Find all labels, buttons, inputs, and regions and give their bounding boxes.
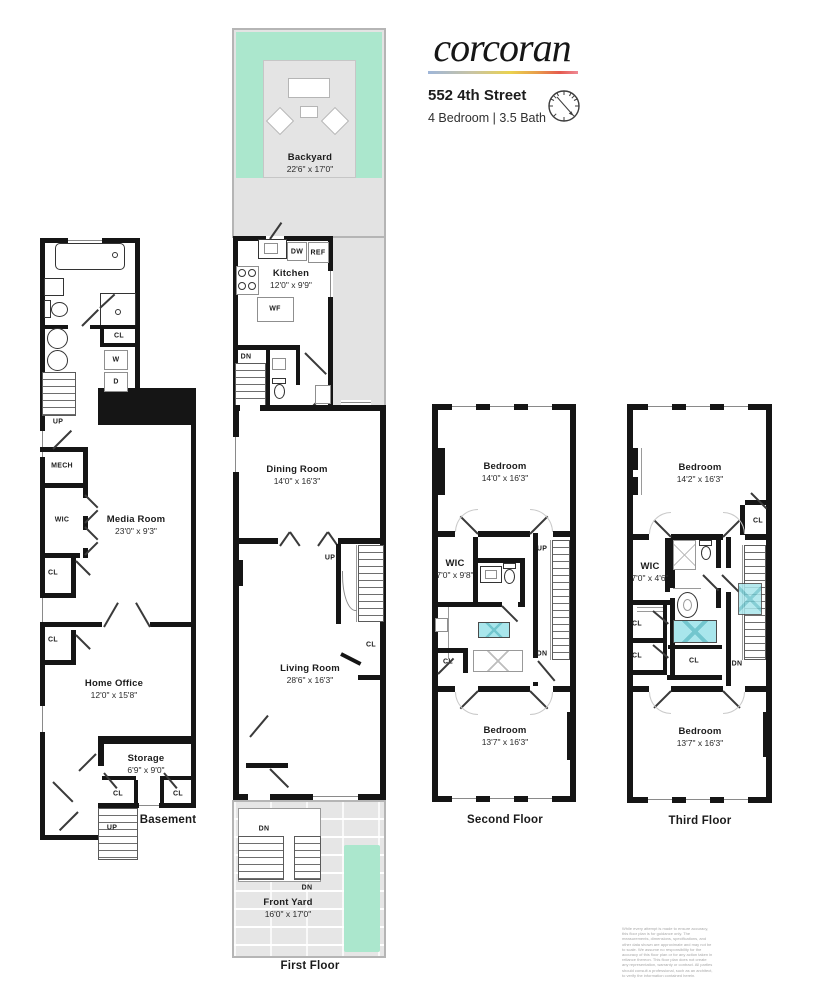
wall bbox=[338, 538, 386, 544]
closet-label: CL bbox=[114, 333, 124, 340]
room-dims: 12'0" x 15'8" bbox=[85, 690, 143, 700]
door-leaf bbox=[269, 768, 289, 788]
chimney-chunk bbox=[627, 477, 638, 495]
dn-label: DN bbox=[537, 651, 548, 658]
wall bbox=[40, 835, 100, 840]
up-label: UP bbox=[53, 419, 63, 426]
window bbox=[139, 803, 159, 808]
up-label: UP bbox=[325, 555, 335, 562]
door-arc bbox=[530, 509, 553, 532]
closet-label: CL bbox=[366, 642, 376, 649]
toilet-bowl bbox=[51, 302, 68, 317]
room-label-front-yard: Front Yard 16'0" x 17'0" bbox=[263, 897, 312, 919]
room-label-wic: WIC 7'0" x 4'6" bbox=[631, 561, 668, 583]
window bbox=[648, 797, 672, 803]
wall bbox=[627, 534, 649, 540]
wall bbox=[432, 531, 455, 537]
door-leaf bbox=[304, 352, 327, 375]
closet-label: CL bbox=[48, 637, 58, 644]
room-dims: 14'0" x 16'3" bbox=[482, 473, 529, 483]
wall bbox=[40, 593, 76, 598]
room-dims: 23'0" x 9'3" bbox=[107, 526, 165, 536]
wall-chunk bbox=[567, 712, 576, 760]
refrigerator-label: REF bbox=[311, 250, 326, 257]
toilet-tank bbox=[44, 300, 51, 318]
wall bbox=[627, 670, 665, 675]
wall bbox=[432, 602, 502, 607]
room-label-media: Media Room 23'0" x 9'3" bbox=[107, 514, 165, 536]
door-arc bbox=[530, 692, 553, 715]
burner bbox=[248, 282, 256, 290]
closet-label: CL bbox=[632, 653, 642, 660]
room-dims: 16'0" x 17'0" bbox=[263, 909, 312, 919]
stoop-stairs bbox=[238, 836, 284, 880]
wall bbox=[553, 686, 576, 692]
room-label-dining: Dining Room 14'0" x 16'3" bbox=[266, 464, 327, 486]
first-floor-plan: Backyard 22'6" x 17'0" DW REF Kitchen 12… bbox=[230, 26, 390, 974]
door-arc bbox=[649, 692, 671, 714]
window bbox=[724, 404, 748, 410]
room-name: Dining Room bbox=[266, 464, 327, 475]
room-name: Home Office bbox=[85, 678, 143, 689]
room-name: Media Room bbox=[107, 514, 165, 525]
wall bbox=[83, 447, 88, 488]
room-dims: 13'7" x 16'3" bbox=[677, 738, 724, 748]
up-label: UP bbox=[537, 546, 547, 553]
dn-label: DN bbox=[302, 885, 313, 892]
wall bbox=[71, 553, 76, 598]
door-opening bbox=[240, 405, 260, 411]
room-dims: 6'9" x 9'0" bbox=[127, 765, 164, 775]
room-name: Storage bbox=[127, 753, 164, 764]
wine-fridge-label: WF bbox=[269, 306, 280, 313]
room-label-bedroom-rear: Bedroom 13'7" x 16'3" bbox=[677, 726, 724, 748]
shelf-line bbox=[637, 611, 663, 612]
room-dims: 7'0" x 4'6" bbox=[631, 573, 668, 583]
kitchen-sink-basin bbox=[264, 243, 278, 254]
room-name: Kitchen bbox=[270, 268, 312, 279]
closet-label: CL bbox=[173, 791, 183, 798]
third-floor-plan: Bedroom 14'2" x 16'3" CL WIC 7'0" x 4'6" bbox=[625, 402, 777, 832]
wall bbox=[266, 350, 270, 405]
room-name: Bedroom bbox=[482, 725, 529, 736]
closet-door bbox=[163, 772, 177, 789]
door-leaf bbox=[52, 781, 73, 802]
skylight bbox=[738, 583, 762, 615]
floor-label-basement: Basement bbox=[140, 814, 197, 826]
window bbox=[528, 796, 552, 802]
wall bbox=[667, 675, 722, 680]
chimney-chunk bbox=[432, 448, 445, 495]
tub-faucet bbox=[112, 252, 118, 258]
door-leaf bbox=[501, 605, 518, 622]
room-name: Bedroom bbox=[677, 462, 724, 473]
window bbox=[490, 404, 514, 410]
window bbox=[648, 404, 672, 410]
vanity-edge bbox=[673, 588, 701, 589]
wall bbox=[98, 736, 104, 766]
room-label-backyard: Backyard 22'6" x 17'0" bbox=[287, 152, 334, 174]
dishwasher-label: DW bbox=[291, 249, 303, 256]
wall bbox=[627, 638, 665, 643]
patio-table bbox=[288, 78, 330, 98]
window bbox=[452, 796, 476, 802]
wall bbox=[40, 622, 102, 627]
stairs-down bbox=[235, 363, 266, 407]
second-floor-plan: Bedroom 14'0" x 16'3" WIC 7'0" x 9'8" bbox=[430, 402, 580, 832]
closet-label: CL bbox=[753, 518, 763, 525]
up-label: UP bbox=[107, 825, 117, 832]
door-arc bbox=[649, 512, 671, 534]
sink-basin bbox=[683, 599, 692, 611]
room-name: WIC bbox=[631, 561, 668, 572]
dn-label: DN bbox=[732, 661, 743, 668]
door-arc bbox=[723, 692, 745, 714]
wall bbox=[150, 622, 196, 627]
pocket-door bbox=[289, 531, 300, 546]
sink bbox=[435, 618, 448, 632]
sink bbox=[44, 278, 64, 296]
room-name: WIC bbox=[436, 558, 473, 569]
closet-label: CL bbox=[48, 570, 58, 577]
burner bbox=[238, 282, 246, 290]
wall bbox=[40, 447, 88, 452]
closet-label: CL bbox=[632, 621, 642, 628]
toilet-bowl bbox=[701, 546, 711, 560]
wall bbox=[100, 325, 140, 329]
window bbox=[233, 437, 239, 472]
wall bbox=[475, 558, 525, 563]
wall bbox=[520, 558, 525, 607]
bed-bath-specs: 4 Bedroom | 3.5 Bath bbox=[428, 111, 546, 125]
wall bbox=[533, 682, 538, 686]
room-name: Front Yard bbox=[263, 897, 312, 908]
wall bbox=[134, 780, 138, 806]
room-label-bedroom-front: Bedroom 14'0" x 16'3" bbox=[482, 461, 529, 483]
room-label-bedroom-front: Bedroom 14'2" x 16'3" bbox=[677, 462, 724, 484]
dn-label: DN bbox=[259, 826, 270, 833]
room-dims: 7'0" x 9'8" bbox=[436, 570, 473, 580]
bay-line bbox=[641, 448, 642, 495]
pocket-door bbox=[317, 532, 328, 547]
room-dims: 14'2" x 16'3" bbox=[677, 474, 724, 484]
wall bbox=[463, 648, 468, 673]
powder-sink bbox=[272, 358, 286, 370]
closet-label: CL bbox=[689, 658, 699, 665]
wall bbox=[478, 686, 530, 692]
front-yard-planting bbox=[344, 845, 380, 952]
door-leaf bbox=[721, 574, 739, 592]
wall bbox=[358, 675, 386, 680]
disclaimer-text: While every attempt is made to ensure ac… bbox=[622, 926, 714, 978]
room-label-office: Home Office 12'0" x 15'8" bbox=[85, 678, 143, 700]
wall bbox=[233, 538, 278, 544]
door-leaf bbox=[702, 574, 719, 591]
stairs-up bbox=[358, 545, 384, 622]
bathtub-teal bbox=[478, 622, 510, 638]
double-door-leaf bbox=[135, 602, 151, 627]
wall bbox=[296, 345, 300, 385]
stair-rail bbox=[550, 540, 551, 660]
room-label-wic: WIC 7'0" x 9'8" bbox=[436, 558, 473, 580]
wall bbox=[671, 686, 723, 692]
sink-basin bbox=[485, 570, 497, 579]
room-label-bedroom-rear: Bedroom 13'7" x 16'3" bbox=[482, 725, 529, 747]
laundry-sink bbox=[47, 328, 68, 349]
mech-label: MECH bbox=[51, 463, 73, 470]
wall bbox=[98, 736, 196, 744]
dn-label: DN bbox=[241, 354, 252, 361]
closet-door bbox=[103, 772, 117, 789]
wall bbox=[432, 686, 455, 692]
wall bbox=[40, 660, 76, 665]
door-leaf bbox=[249, 715, 269, 738]
wall bbox=[518, 602, 525, 607]
floor-label-second: Second Floor bbox=[467, 814, 543, 826]
stairs-up bbox=[42, 372, 76, 416]
room-name: Bedroom bbox=[482, 461, 529, 472]
window bbox=[40, 431, 45, 457]
room-dims: 14'0" x 16'3" bbox=[266, 476, 327, 486]
washer-label: W bbox=[113, 357, 120, 364]
floorplan-sheet: corcoran 552 4th Street 4 Bedroom | 3.5 … bbox=[0, 0, 813, 1000]
wall bbox=[90, 325, 100, 329]
double-door-leaf bbox=[103, 602, 119, 627]
shower bbox=[673, 540, 696, 570]
window bbox=[40, 706, 45, 732]
wall bbox=[668, 645, 722, 649]
shower bbox=[473, 650, 523, 672]
logo-gradient-bar bbox=[428, 71, 578, 74]
window bbox=[328, 271, 333, 297]
angled-wall bbox=[340, 652, 361, 666]
laundry-sink bbox=[47, 350, 68, 371]
entry-closet bbox=[315, 385, 331, 404]
stair-curve bbox=[342, 571, 357, 611]
window bbox=[724, 797, 748, 803]
wall-chunk bbox=[763, 712, 772, 757]
address: 552 4th Street bbox=[428, 87, 526, 104]
wall bbox=[100, 343, 140, 347]
wall bbox=[98, 388, 196, 425]
wall bbox=[726, 592, 731, 686]
window bbox=[490, 796, 514, 802]
exterior-stairs bbox=[98, 808, 138, 860]
yard-stairs bbox=[294, 836, 321, 880]
room-label-kitchen: Kitchen 12'0" x 9'9" bbox=[270, 268, 312, 290]
closet-label: CL bbox=[113, 791, 123, 798]
basement-floor-plan: CL W D UP MECH WIC CL Media Room 23'0" x… bbox=[38, 236, 198, 876]
door-arc bbox=[455, 509, 478, 532]
stairs bbox=[552, 540, 570, 660]
window bbox=[686, 797, 710, 803]
door-arc bbox=[455, 692, 478, 715]
wall bbox=[40, 483, 88, 488]
room-name: Backyard bbox=[287, 152, 334, 163]
wall bbox=[553, 531, 576, 537]
wall bbox=[473, 537, 478, 607]
wall bbox=[745, 686, 772, 692]
room-label-living: Living Room 28'6" x 16'3" bbox=[280, 663, 340, 685]
closet-door bbox=[75, 634, 91, 650]
window bbox=[452, 404, 476, 410]
wall bbox=[160, 780, 164, 806]
closet-door bbox=[84, 526, 98, 540]
room-name: Bedroom bbox=[677, 726, 724, 737]
room-name: Living Room bbox=[280, 663, 340, 674]
window bbox=[686, 404, 710, 410]
dryer-label: D bbox=[113, 379, 118, 386]
wall bbox=[191, 425, 196, 808]
side-yard bbox=[331, 238, 386, 405]
wall bbox=[246, 763, 288, 768]
floor-label-third: Third Floor bbox=[669, 815, 732, 827]
room-dims: 12'0" x 9'9" bbox=[270, 280, 312, 290]
door-leaf bbox=[59, 811, 79, 831]
wall bbox=[627, 686, 649, 692]
window bbox=[528, 404, 552, 410]
room-dims: 22'6" x 17'0" bbox=[287, 164, 334, 174]
room-label-storage: Storage 6'9" x 9'0" bbox=[127, 753, 164, 775]
bay-chunk bbox=[233, 560, 243, 586]
wall bbox=[726, 537, 731, 568]
closet-door bbox=[84, 494, 98, 508]
chimney-chunk bbox=[627, 448, 638, 470]
compass-icon bbox=[546, 88, 582, 124]
wall bbox=[716, 538, 721, 568]
shelf-line bbox=[637, 607, 663, 608]
wic-label: WIC bbox=[55, 517, 70, 524]
burner bbox=[248, 269, 256, 277]
pocket-door bbox=[279, 532, 290, 547]
toilet-bowl bbox=[504, 569, 515, 584]
shower-drain bbox=[115, 309, 121, 315]
toilet-bowl bbox=[274, 384, 285, 399]
bathtub-teal bbox=[673, 620, 717, 643]
burner bbox=[238, 269, 246, 277]
wall bbox=[745, 534, 772, 540]
corcoran-logo: corcoran bbox=[422, 24, 582, 71]
room-dims: 13'7" x 16'3" bbox=[482, 737, 529, 747]
wall bbox=[478, 531, 530, 537]
door-leaf bbox=[537, 660, 555, 681]
closet-door bbox=[75, 560, 91, 576]
room-dims: 28'6" x 16'3" bbox=[280, 675, 340, 685]
floor-label-first: First Floor bbox=[280, 960, 339, 972]
wall bbox=[336, 544, 341, 624]
patio-table-small bbox=[300, 106, 318, 118]
window bbox=[40, 596, 45, 622]
door-leaf bbox=[78, 753, 96, 771]
